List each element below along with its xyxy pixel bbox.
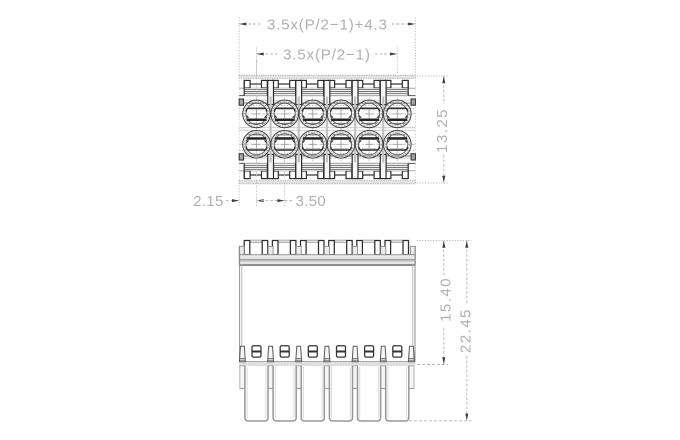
svg-text:3.5x(P/2−1)+4.3: 3.5x(P/2−1)+4.3 xyxy=(267,16,388,33)
svg-text:3.5x(P/2−1): 3.5x(P/2−1) xyxy=(283,46,371,63)
svg-text:22.45: 22.45 xyxy=(457,308,474,353)
svg-text:13.25: 13.25 xyxy=(434,108,451,153)
svg-text:3.50: 3.50 xyxy=(296,193,326,210)
svg-text:15.40: 15.40 xyxy=(437,277,454,322)
svg-text:2.15: 2.15 xyxy=(193,193,223,210)
